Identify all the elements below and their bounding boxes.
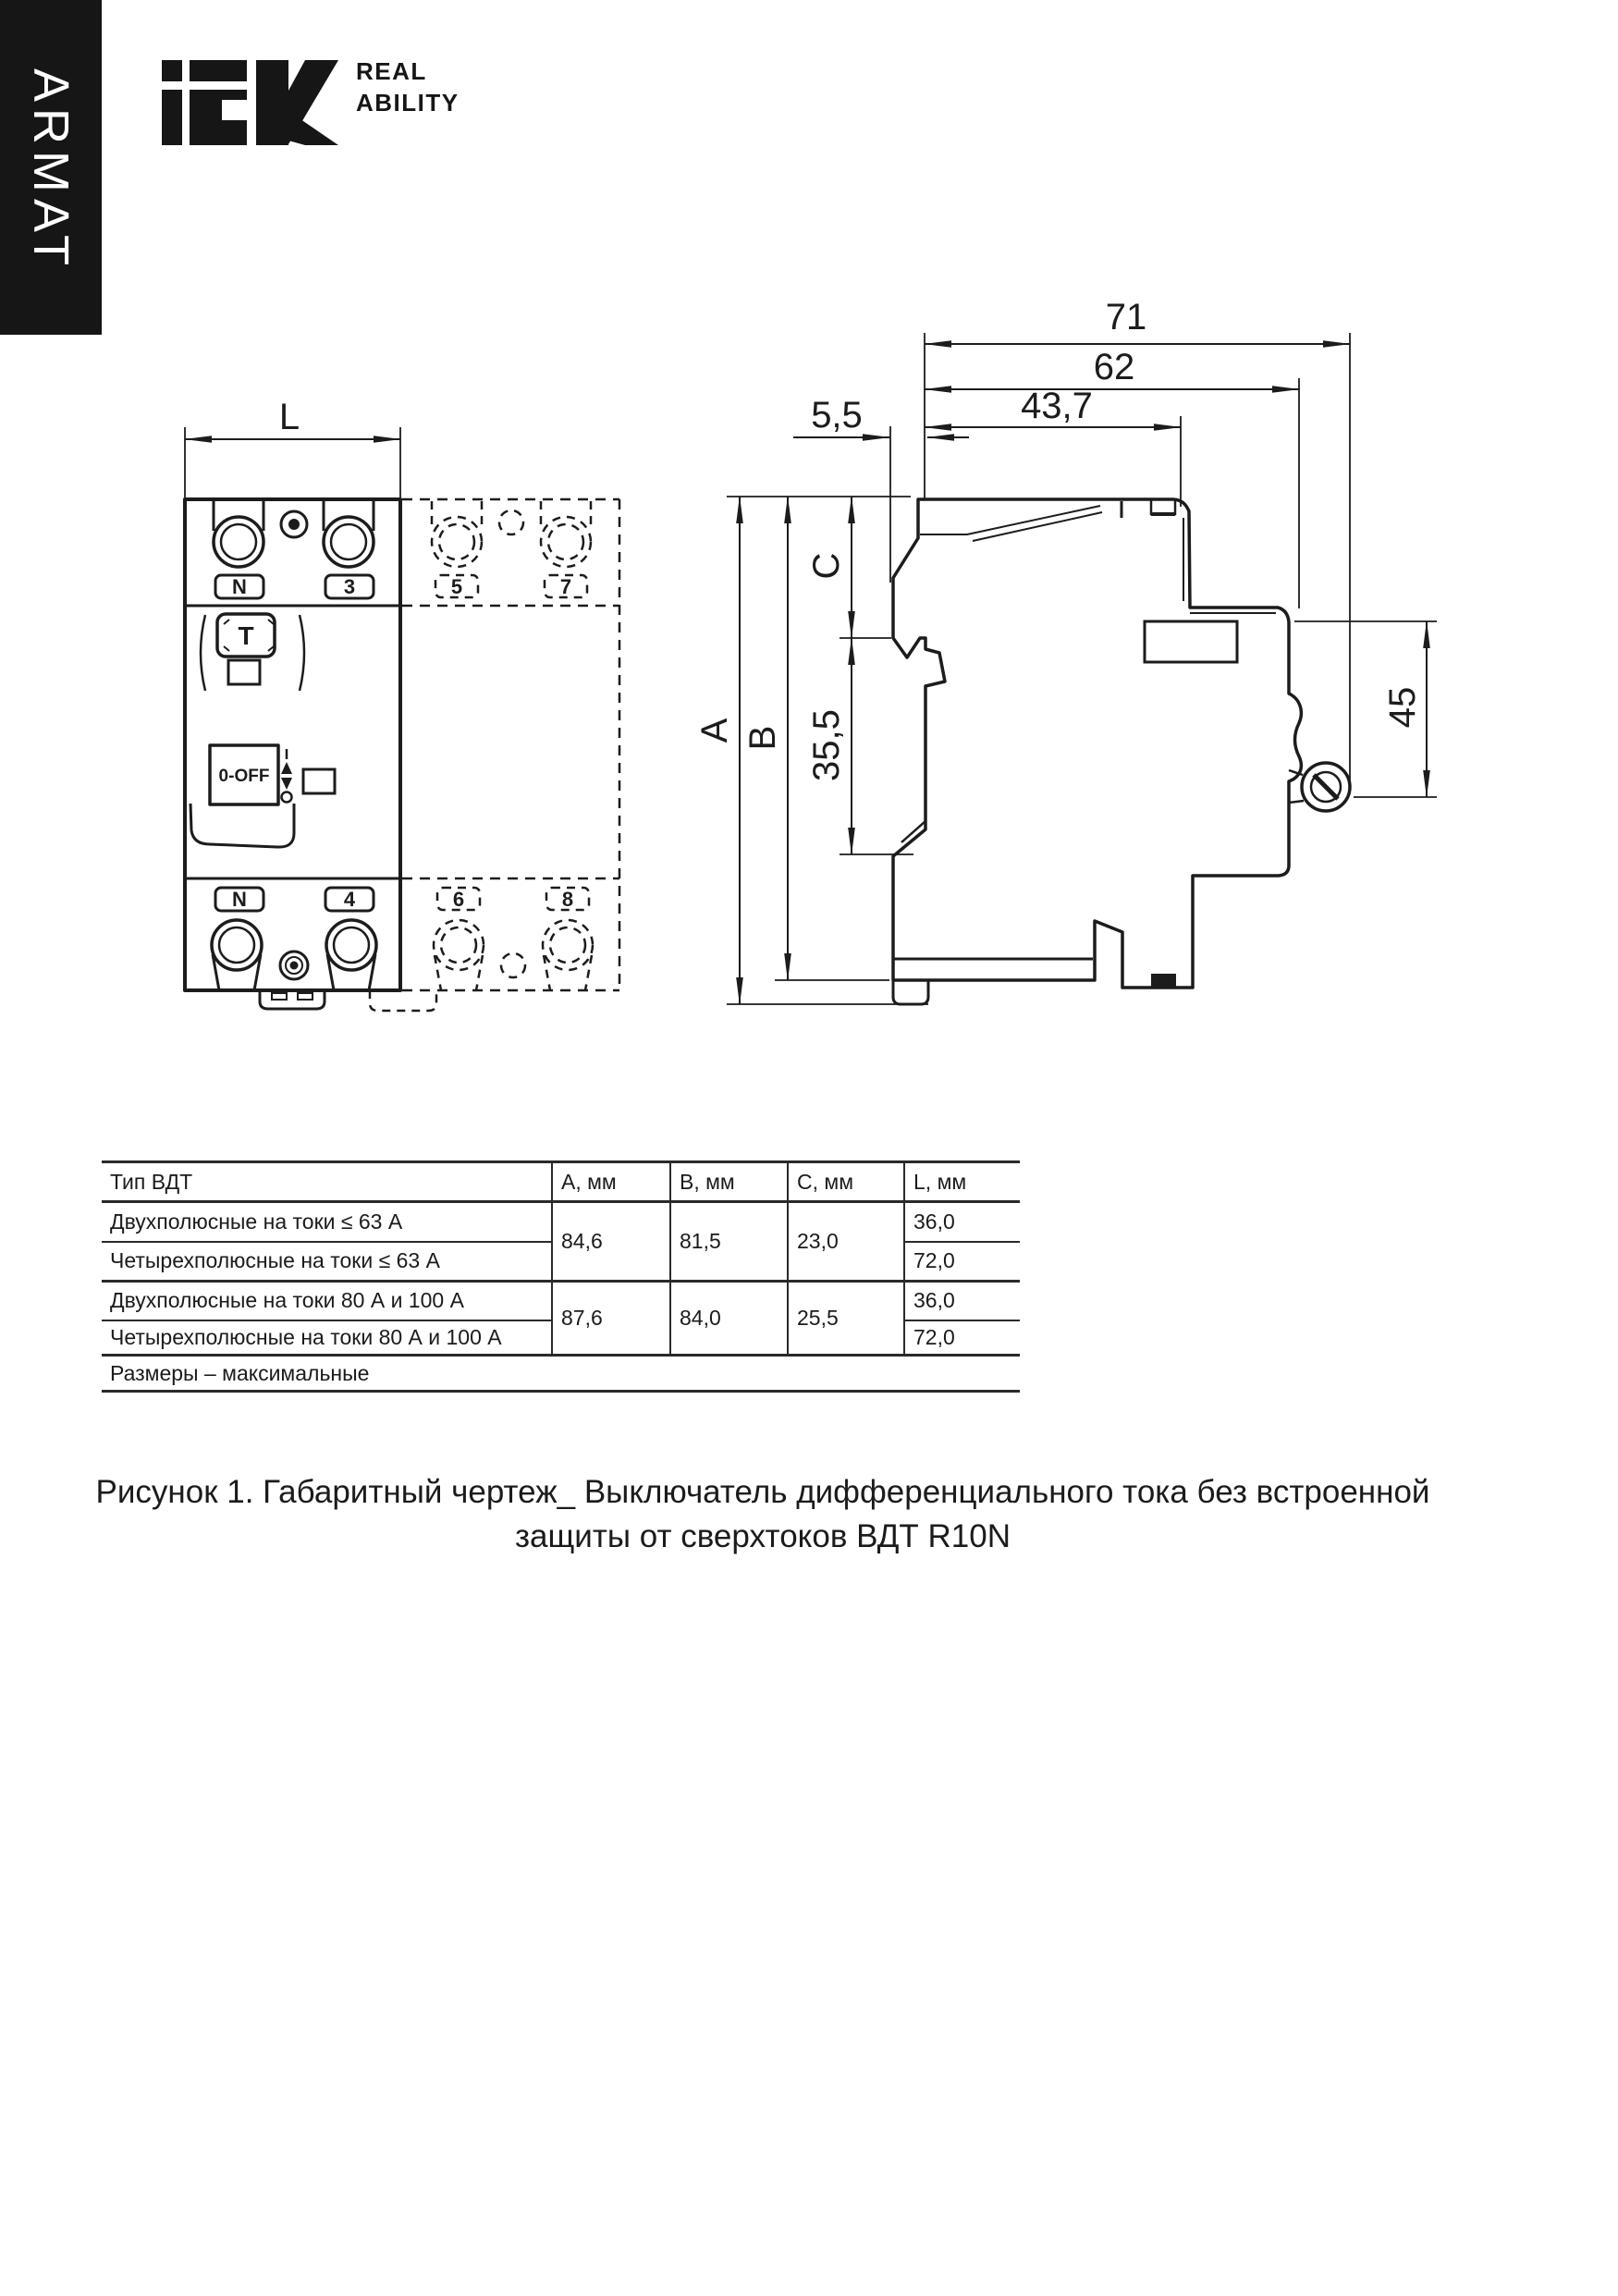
- cell-c: 25,5: [788, 1282, 904, 1356]
- front-view-drawing: L: [185, 397, 619, 1011]
- side-label-window: [1145, 621, 1237, 662]
- screw-icon-top: [281, 511, 307, 537]
- dim-label-B: B: [742, 726, 783, 751]
- cell-type: Двухполюсные на токи ≤ 63 А: [102, 1202, 552, 1242]
- terminal-label-bottom-left: N: [232, 888, 247, 911]
- figure-caption-line2: защиты от сверхтоков ВДТ R10N: [55, 1515, 1470, 1559]
- cell-l: 72,0: [904, 1242, 1020, 1282]
- figure-caption-line1: Рисунок 1. Габаритный чертеж_ Выключател…: [55, 1470, 1470, 1515]
- dimensional-drawing: L: [0, 0, 1618, 1110]
- cell-type: Четырехполюсные на токи ≤ 63 А: [102, 1242, 552, 1282]
- cell-type: Четырехполюсные на токи 80 А и 100 А: [102, 1320, 552, 1356]
- terminal-lug-bottom-left: [212, 920, 262, 990]
- cell-l: 36,0: [904, 1202, 1020, 1242]
- cell-l: 36,0: [904, 1282, 1020, 1320]
- screw-icon-bottom: [280, 952, 308, 979]
- switch-label: 0-OFF: [219, 767, 270, 786]
- terminal-screw-icon: [1289, 763, 1350, 811]
- terminal-lug-top-left: [214, 501, 264, 567]
- cell-a: 87,6: [552, 1282, 670, 1356]
- terminal-label-top-left: N: [232, 575, 247, 598]
- test-button: T: [201, 614, 304, 691]
- din-clip-tab: [260, 990, 325, 1009]
- dim-label-45: 45: [1382, 687, 1423, 729]
- document-page: ARMAT REAL ABILITY L: [0, 0, 1618, 2296]
- figure-caption: Рисунок 1. Габаритный чертеж_ Выключател…: [55, 1470, 1470, 1559]
- terminal-lug-top-right: [324, 501, 374, 567]
- terminal-label-phantom-7: 7: [560, 575, 571, 598]
- table-row: Двухполюсные на токи ≤ 63 А 84,6 81,5 23…: [102, 1202, 1020, 1242]
- dim-label-43-7: 43,7: [1021, 386, 1093, 426]
- dim-label-5-5: 5,5: [811, 395, 863, 436]
- table-footnote: Размеры – максимальные: [102, 1356, 1020, 1392]
- dim-label-71: 71: [1106, 297, 1147, 338]
- phantom-pole-outline: [370, 499, 619, 1011]
- terminal-label-bottom-right: 4: [344, 888, 356, 911]
- cell-type: Двухполюсные на токи 80 А и 100 А: [102, 1282, 552, 1320]
- cell-c: 23,0: [788, 1202, 904, 1282]
- cell-b: 84,0: [670, 1282, 788, 1356]
- dim-label-A: A: [694, 718, 735, 743]
- dim-label-C: C: [806, 553, 847, 580]
- cell-a: 84,6: [552, 1202, 670, 1282]
- terminal-lug-bottom-right: [326, 920, 376, 990]
- side-view-drawing: 71 62 43,7 5,5 A B C 35,5: [694, 297, 1437, 1004]
- col-header-type: Тип ВДТ: [102, 1162, 552, 1202]
- col-header-b: B, мм: [670, 1162, 788, 1202]
- dim-label-35-5: 35,5: [806, 709, 847, 781]
- dimensions-table: Тип ВДТ A, мм B, мм C, мм L, мм Двухполю…: [102, 1160, 1020, 1393]
- terminal-label-phantom-5: 5: [451, 575, 462, 598]
- cell-b: 81,5: [670, 1202, 788, 1282]
- test-button-label: T: [238, 621, 253, 650]
- col-header-c: C, мм: [788, 1162, 904, 1202]
- terminal-label-phantom-6: 6: [453, 888, 464, 911]
- col-header-a: A, мм: [552, 1162, 670, 1202]
- din-clip-tab-side: [893, 980, 928, 1004]
- terminal-label-phantom-8: 8: [562, 888, 573, 911]
- terminal-label-top-right: 3: [344, 575, 355, 598]
- table-row: Двухполюсные на токи 80 А и 100 А 87,6 8…: [102, 1282, 1020, 1320]
- dim-label-L: L: [279, 397, 300, 437]
- cell-l: 72,0: [904, 1320, 1020, 1356]
- toggle-switch: 0-OFF: [190, 745, 335, 847]
- table-footnote-row: Размеры – максимальные: [102, 1356, 1020, 1392]
- dim-label-62: 62: [1094, 347, 1135, 387]
- table-header-row: Тип ВДТ A, мм B, мм C, мм L, мм: [102, 1162, 1020, 1202]
- side-view-body: [893, 499, 1301, 1004]
- col-header-l: L, мм: [904, 1162, 1020, 1202]
